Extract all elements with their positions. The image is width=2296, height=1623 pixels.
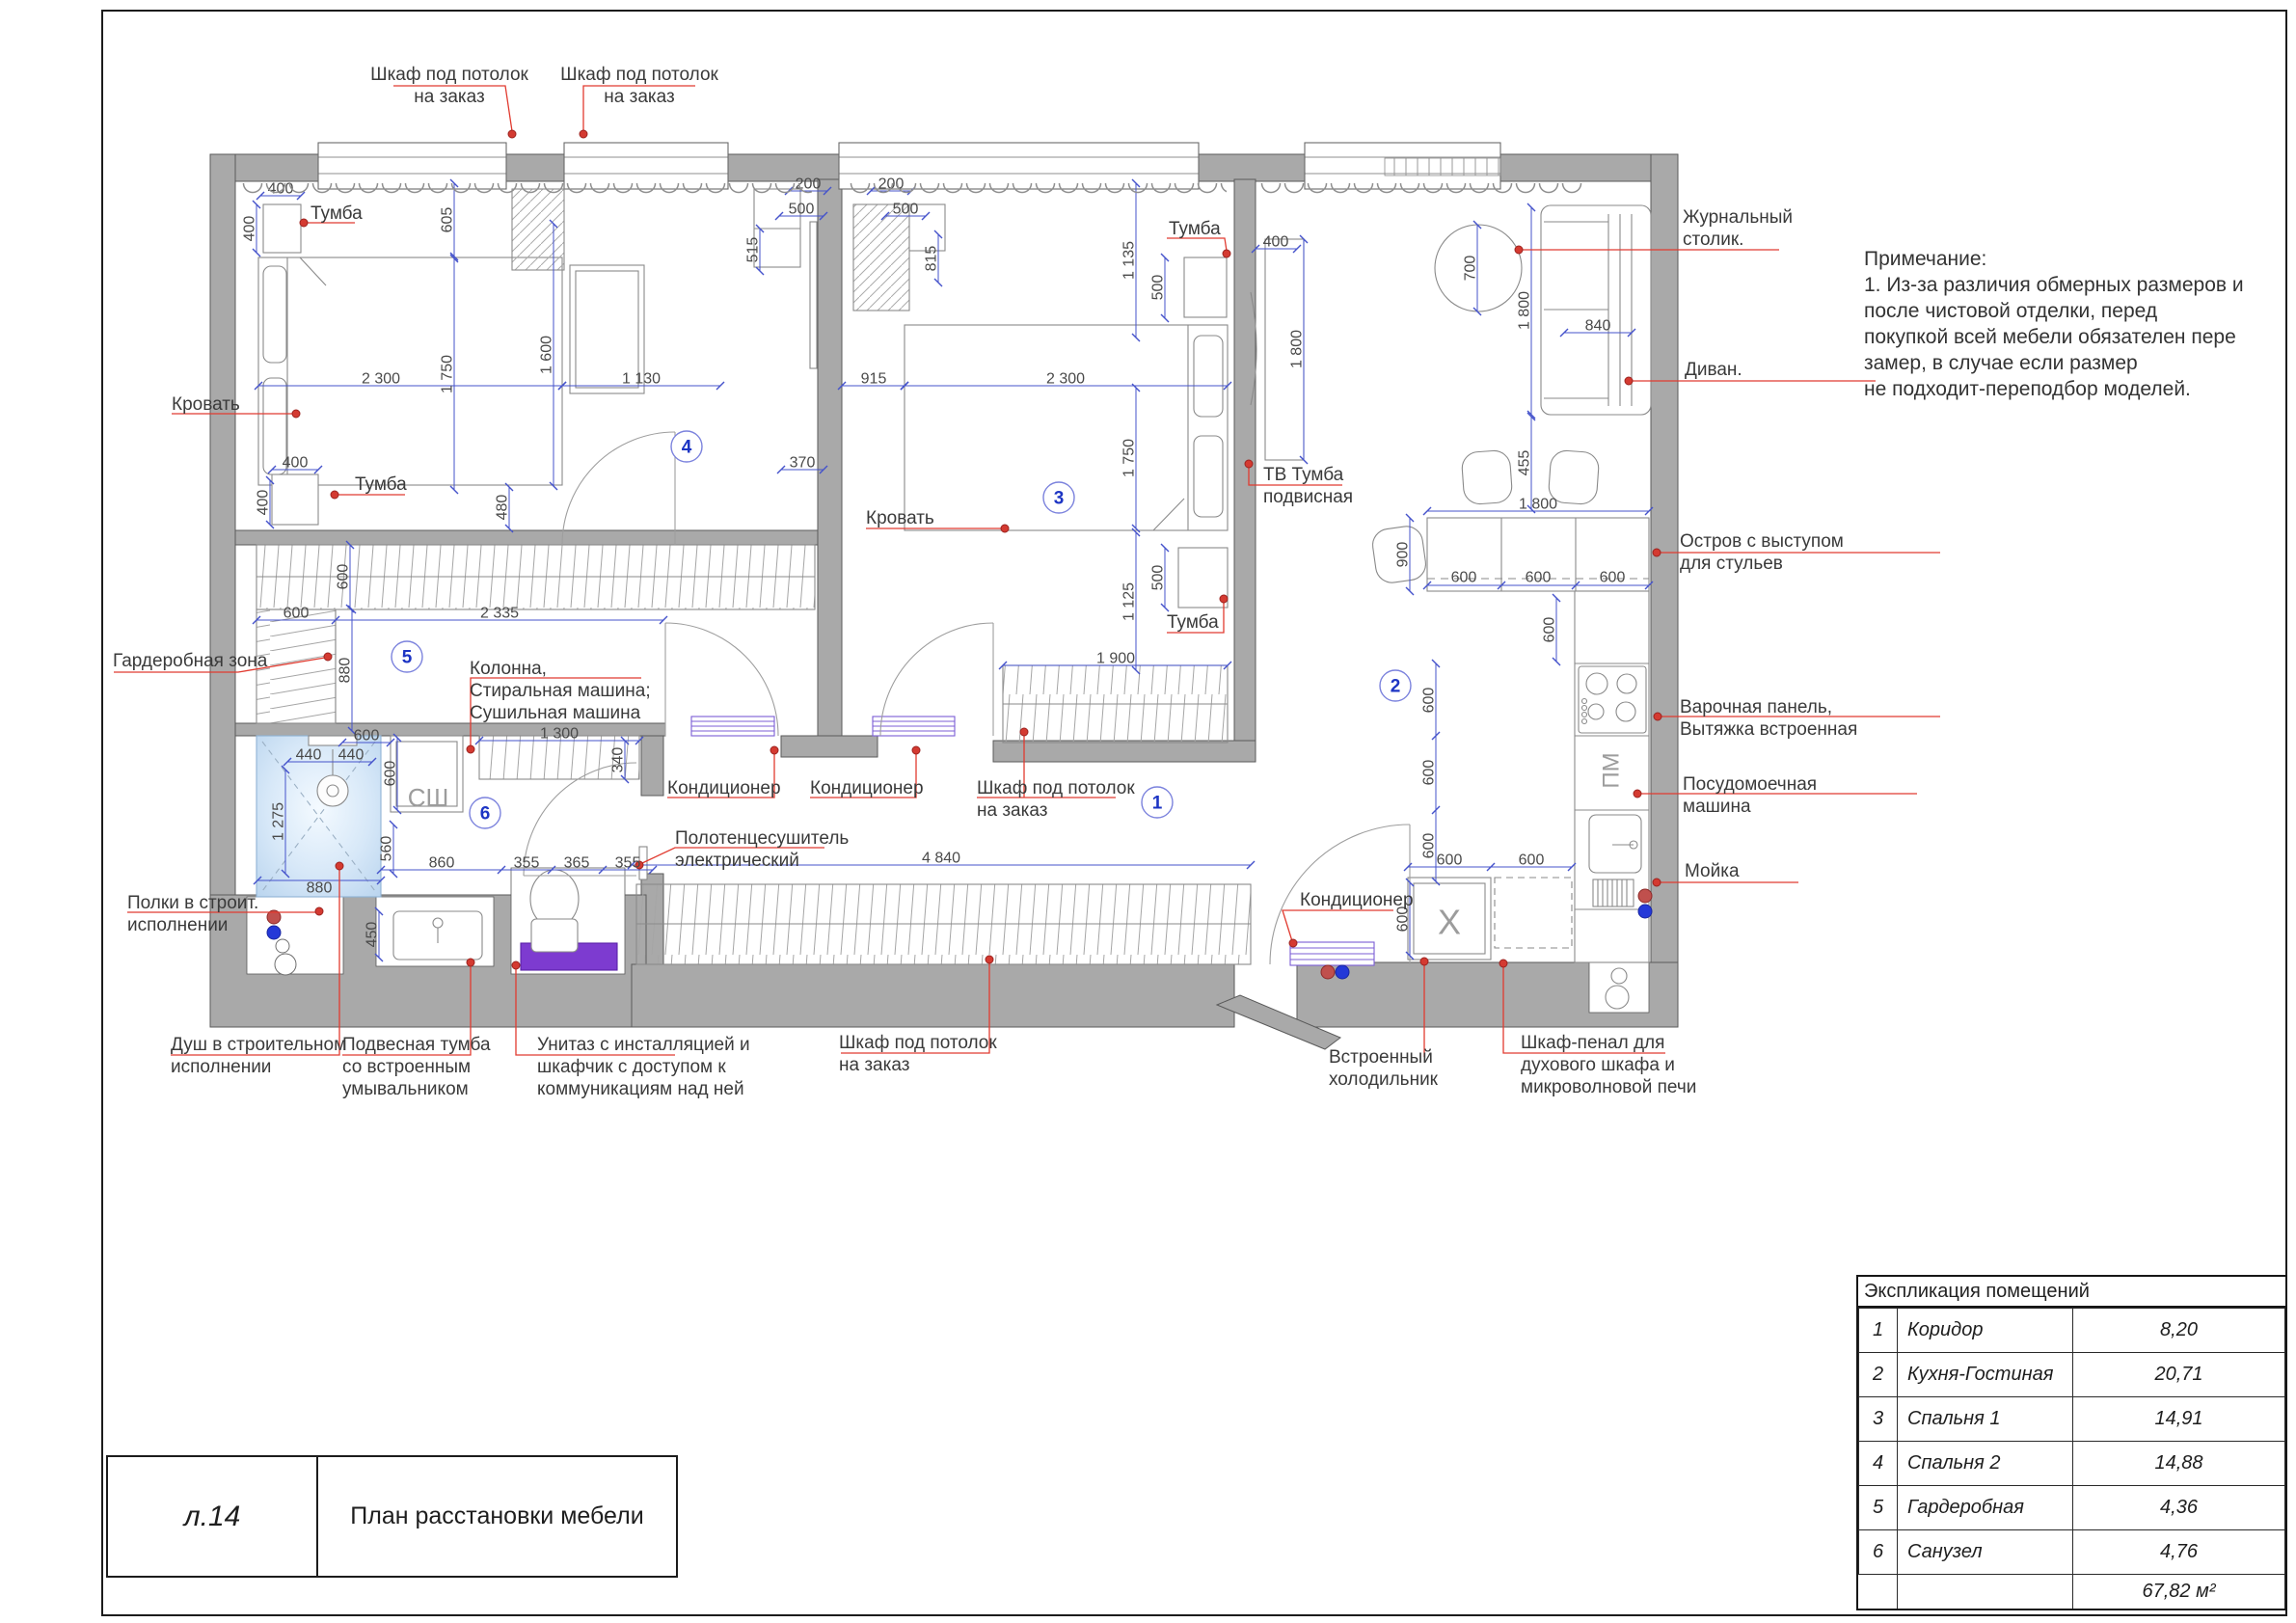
leader-dot — [467, 745, 474, 753]
bed-bedroom2 — [258, 257, 562, 485]
legend-cell: 4,36 — [2073, 1486, 2285, 1530]
leader-dot — [300, 219, 308, 227]
label-tall-cabinet: Шкаф-пенал для духового шкафа и микровол… — [1521, 1032, 1696, 1098]
dimension-label: 355 — [615, 855, 641, 872]
leader-dot — [508, 130, 516, 138]
label-wardrobe-ceiling-1: Шкаф под потолок на заказ — [370, 64, 528, 108]
leader-dot — [467, 959, 474, 966]
legend-cell: 5 — [1859, 1486, 1898, 1530]
label-wardrobe-corridor: Шкаф под потолок на заказ — [839, 1032, 997, 1076]
bar-chair — [1461, 449, 1513, 504]
dimension-label: 500 — [1150, 275, 1167, 301]
label-sofa: Диван. — [1685, 359, 1742, 381]
dimension-label: 1 750 — [1121, 439, 1138, 477]
legend-cell: 4,76 — [2073, 1530, 2285, 1575]
dimension-label: 815 — [924, 246, 940, 272]
leader-dot — [1654, 713, 1661, 720]
dimension-label: 600 — [1421, 833, 1438, 859]
dimension-label: 600 — [284, 606, 310, 622]
furniture-annotation: X — [1438, 903, 1461, 942]
legend-cell: Санузел — [1898, 1530, 2073, 1575]
legend-cell: 2 — [1859, 1353, 1898, 1397]
label-wardrobe-bedroom1: Шкаф под потолок на заказ — [977, 777, 1135, 822]
legend-cell: 4 — [1859, 1442, 1898, 1486]
meter — [1611, 968, 1627, 984]
wardrobe-zone-side — [257, 609, 336, 723]
dimension-label: 500 — [1150, 565, 1167, 591]
dimension-label: 600 — [1421, 760, 1438, 786]
dimension-label: 600 — [383, 761, 399, 787]
leader-dot — [1020, 728, 1028, 736]
note-body: 1. Из-за различия обмерных размеров и по… — [1864, 272, 2279, 402]
legend-cell: Спальня 1 — [1898, 1397, 2073, 1442]
curtain-wave — [849, 183, 1227, 206]
legend-cell: Гардеробная — [1898, 1486, 2073, 1530]
curtain-wave — [1259, 183, 1583, 206]
dimension-label: 880 — [338, 658, 354, 684]
leader-dot — [1515, 246, 1523, 254]
room-marker-number: 6 — [480, 804, 491, 825]
dimension-label: 600 — [1421, 688, 1438, 714]
label-wardrobe-ceiling-2: Шкаф под потолок на заказ — [560, 64, 718, 108]
nightstand-b1-top — [1184, 257, 1227, 317]
legend-cell — [1898, 1575, 2073, 1609]
dimension-label: 400 — [1263, 234, 1289, 251]
dimension-label: 600 — [1600, 570, 1626, 586]
cold-water-dot — [267, 926, 281, 939]
legend-row: 6 Санузел 4,76 — [1859, 1530, 2285, 1575]
dimension-label: 1 300 — [540, 726, 579, 743]
dimension-label: 340 — [610, 747, 627, 773]
room-marker-number: 4 — [682, 438, 692, 458]
dimension-label: 700 — [1463, 256, 1479, 282]
furniture-annotation: ПМ — [1599, 752, 1625, 788]
legend-cell: 20,71 — [2073, 1353, 2285, 1397]
dimension-label: 1 800 — [1517, 291, 1533, 330]
legend-cell: 3 — [1859, 1397, 1898, 1442]
label-sink: Мойка — [1685, 860, 1740, 882]
legend-title: Экспликация помещений — [1858, 1277, 2285, 1308]
legend-row: 4 Спальня 2 14,88 — [1859, 1442, 2285, 1486]
sheet-number: л.14 — [106, 1455, 318, 1578]
dimension-label: 400 — [242, 216, 258, 242]
dimension-label: 840 — [1585, 318, 1611, 335]
dimension-label: 370 — [790, 455, 816, 472]
leader-dot — [1220, 595, 1228, 603]
nightstand-b2-top — [263, 204, 301, 253]
legend-row: 2 Кухня-Гостиная 20,71 — [1859, 1353, 2285, 1397]
cold-water-dot — [1638, 905, 1652, 918]
dimension-label: 1 750 — [440, 355, 456, 393]
window-cabinet-b1 — [853, 204, 909, 311]
dimension-label: 600 — [1519, 852, 1545, 869]
legend-row: 3 Спальня 1 14,91 — [1859, 1397, 2285, 1442]
label-nightstand-b2-bottom: Тумба — [355, 473, 407, 496]
room-marker-number: 5 — [402, 648, 413, 668]
leader-dot — [580, 130, 587, 138]
room-marker-number: 2 — [1391, 677, 1401, 697]
leader-dot — [912, 746, 920, 754]
hob — [1579, 666, 1646, 733]
label-tv-stand: ТВ Тумба подвисная — [1263, 464, 1353, 508]
legend-total-row: 67,82 м² — [1859, 1575, 2285, 1609]
label-coffee-table: Журнальный столик. — [1683, 206, 1793, 251]
title-block: л.14 План расстановки мебели — [106, 1455, 678, 1578]
legend-row: 1 Коридор 8,20 — [1859, 1309, 2285, 1353]
note-heading: Примечание: — [1864, 246, 2279, 272]
leader-dot — [1625, 377, 1633, 385]
leader-dot — [324, 653, 332, 661]
balcony-block — [1385, 158, 1500, 176]
drawing-sheet: 4004006052 3001 7501 6001 13051550020037… — [0, 0, 2296, 1623]
furniture — [257, 189, 1651, 1009]
dimension-label: 1 900 — [1096, 651, 1135, 667]
label-nightstand-b1-top: Тумба — [1169, 218, 1221, 240]
leader-dot — [315, 907, 323, 915]
dimension-label: 400 — [283, 455, 309, 472]
leader-dot — [1289, 939, 1297, 947]
dimension-label: 440 — [338, 747, 365, 764]
label-dishwasher: Посудомоечная машина — [1683, 773, 1817, 818]
leader-dot — [1223, 250, 1230, 257]
dimension-label: 1 275 — [271, 802, 287, 841]
dimension-label: 4 840 — [922, 851, 960, 867]
legend-cell: 8,20 — [2073, 1309, 2285, 1353]
dimension-label: 355 — [514, 855, 540, 872]
legend-total-area: 67,82 м² — [2073, 1575, 2285, 1609]
page-title: План расстановки мебели — [316, 1455, 678, 1578]
dimension-label: 2 300 — [1046, 371, 1085, 388]
dimension-label: 1 125 — [1121, 582, 1138, 621]
leader-dot — [1001, 525, 1009, 532]
note-block: Примечание: 1. Из-за различия обмерных р… — [1864, 246, 2279, 402]
leader-dot — [1499, 960, 1507, 967]
leader-dot — [1634, 790, 1641, 798]
toilet-unit — [530, 870, 579, 952]
leader-line — [1283, 910, 1393, 941]
dimension-label: 365 — [564, 855, 590, 872]
dimension-label: 1 800 — [1519, 497, 1557, 513]
legend-cell: Коридор — [1898, 1309, 2073, 1353]
label-fridge: Встроенный холодильник — [1329, 1046, 1438, 1091]
label-island: Остров с выступом для стульев — [1680, 530, 1844, 575]
leader-dot — [1653, 879, 1661, 886]
label-ac-kitchen: Кондиционер — [1300, 889, 1414, 911]
leader-dot — [331, 491, 338, 499]
dimension-label: 1 800 — [1289, 330, 1306, 368]
dimension-label: 2 300 — [362, 371, 400, 388]
windows — [318, 143, 1500, 189]
dimension-label: 605 — [440, 207, 456, 233]
dimension-label: 480 — [495, 495, 511, 521]
legend-row: 5 Гардеробная 4,36 — [1859, 1486, 2285, 1530]
nightstand-b2-bottom — [272, 474, 318, 525]
dimension-label: 455 — [1517, 450, 1533, 476]
label-shower: Душ в строительном исполнении — [171, 1034, 346, 1078]
leader-dot — [1653, 549, 1661, 556]
dimension-label: 860 — [429, 855, 455, 872]
dimension-label: 915 — [861, 371, 887, 388]
dimension-label: 600 — [336, 564, 352, 590]
label-vanity: Подвесная тумба со встроенным умывальник… — [342, 1034, 491, 1100]
label-nightstand-b1-bottom: Тумба — [1167, 611, 1219, 634]
legend-cell: 14,88 — [2073, 1442, 2285, 1486]
dimension-label: 600 — [1526, 570, 1552, 586]
dimension-label: 600 — [354, 728, 380, 744]
hot-water-dot — [1321, 965, 1335, 979]
hot-water-dot — [1638, 889, 1652, 903]
dimension-label: 2 335 — [480, 606, 519, 622]
dimension-label: 515 — [745, 237, 762, 263]
furniture-annotation: СШ — [408, 783, 449, 812]
room-marker-number: 1 — [1152, 794, 1163, 814]
label-nightstand-b2-top: Тумба — [311, 203, 363, 225]
dimension-label: 880 — [307, 880, 333, 897]
dimension-label: 1 600 — [539, 336, 555, 374]
meter — [1606, 986, 1629, 1009]
legend-cell: 1 — [1859, 1309, 1898, 1353]
dimension-label: 450 — [365, 922, 381, 948]
legend-cell: Спальня 2 — [1898, 1442, 2073, 1486]
vanity-unit — [393, 911, 482, 960]
dimension-label: 1 130 — [622, 371, 661, 388]
room-legend-table: Экспликация помещений 1 Коридор 8,20 2 К… — [1856, 1275, 2287, 1610]
label-shelves: Полки в строит. исполнении — [127, 892, 258, 936]
leader-dot — [770, 746, 778, 754]
leader-dot — [1420, 958, 1428, 965]
legend-cell: 14,91 — [2073, 1397, 2285, 1442]
dimension-label: 1 135 — [1121, 241, 1138, 280]
label-towel-dryer: Полотенцесушитель электрический — [675, 827, 849, 872]
leader-dot — [292, 410, 300, 418]
tv-bedroom2 — [810, 222, 817, 368]
legend-cell — [1859, 1575, 1898, 1609]
leader-dot — [336, 862, 343, 870]
dimension-label: 600 — [1542, 617, 1558, 643]
cold-water-dot — [1336, 965, 1349, 979]
leader-dot — [986, 956, 993, 963]
dimension-label: 440 — [296, 747, 322, 764]
label-toilet: Унитаз с инсталляцией и шкафчик с доступ… — [537, 1034, 750, 1100]
label-bed-bedroom1: Кровать — [866, 507, 934, 529]
legend-cell: 6 — [1859, 1530, 1898, 1575]
sofa — [1541, 205, 1651, 415]
label-ac-2: Кондиционер — [810, 777, 924, 799]
leader-dot — [512, 961, 520, 969]
label-wardrobe-zone: Гардеробная зона — [113, 650, 267, 672]
room-marker-number: 3 — [1054, 489, 1065, 509]
dimension-label: 600 — [1451, 570, 1477, 586]
legend-cell: Кухня-Гостиная — [1898, 1353, 2073, 1397]
dimension-label: 600 — [1437, 852, 1463, 869]
label-hob: Варочная панель, Вытяжка встроенная — [1680, 696, 1857, 741]
dimension-label: 400 — [256, 490, 272, 516]
leader-dot — [1245, 460, 1253, 468]
label-bed-bedroom2: Кровать — [172, 393, 240, 416]
dimension-label: 900 — [1395, 542, 1412, 568]
tall-oven-cabinet — [1495, 878, 1572, 948]
label-washer-column: Колонна, Стиральная машина; Сушильная ма… — [470, 658, 651, 724]
label-ac-1: Кондиционер — [667, 777, 781, 799]
dimension-label: 560 — [379, 836, 395, 862]
